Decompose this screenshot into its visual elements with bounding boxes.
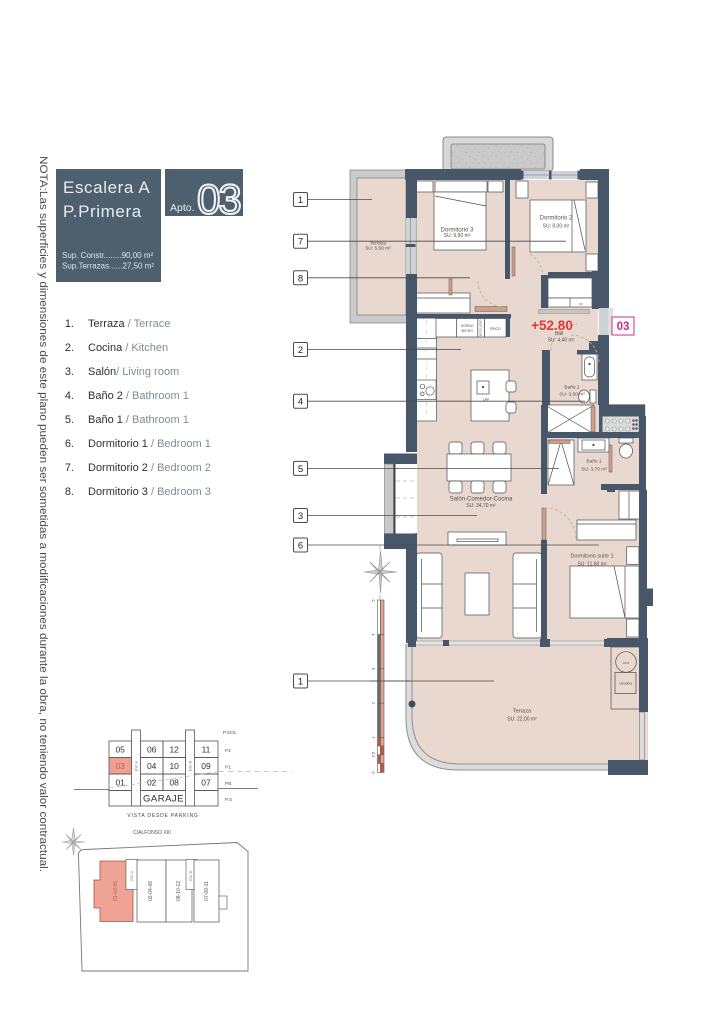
svg-text:P.S: P.S [225, 797, 232, 803]
svg-text:5: 5 [298, 464, 303, 475]
svg-text:07: 07 [201, 777, 211, 787]
svg-text:01: 01 [115, 777, 125, 787]
svg-text:4: 4 [372, 633, 376, 635]
svg-text:Baño 2 / Bathroom 1: Baño 2 / Bathroom 1 [88, 390, 189, 402]
svg-text:10: 10 [169, 761, 179, 771]
svg-text:Baño 2: Baño 2 [564, 385, 580, 391]
svg-text:2: 2 [372, 702, 376, 704]
svg-text:03: 03 [115, 761, 125, 771]
svg-text:ESC-A: ESC-A [130, 870, 134, 881]
svg-text:SU: 3,70 m²: SU: 3,70 m² [581, 467, 607, 473]
svg-text:HORNO: HORNO [461, 324, 474, 328]
svg-text:SU: 34,70 m²: SU: 34,70 m² [466, 503, 496, 509]
svg-text:08-10-12: 08-10-12 [176, 881, 182, 901]
svg-text:SU: 8,00 m²: SU: 8,00 m² [543, 224, 570, 230]
svg-text:3: 3 [298, 511, 303, 522]
svg-text:08: 08 [169, 777, 179, 787]
svg-text:Dormitorio 2 / Bedroom 2: Dormitorio 2 / Bedroom 2 [88, 462, 211, 474]
svg-text:Terraza / Terrace: Terraza / Terrace [88, 318, 170, 330]
svg-text:SU: 4,40 m²: SU: 4,40 m² [548, 338, 575, 344]
svg-text:Dormitorio 3 / Bedroom 3: Dormitorio 3 / Bedroom 3 [88, 486, 211, 498]
svg-text:4: 4 [298, 397, 303, 408]
svg-text:1.: 1. [65, 318, 74, 330]
svg-text:07-09-11: 07-09-11 [204, 881, 210, 901]
svg-text:CF: CF [579, 302, 583, 306]
svg-text:Cocina / Kitchen: Cocina / Kitchen [88, 342, 168, 354]
svg-text:8.: 8. [65, 486, 74, 498]
svg-text:P2: P2 [225, 748, 231, 754]
svg-text:MICRO: MICRO [462, 329, 474, 333]
svg-text:4.: 4. [65, 390, 74, 402]
svg-text:1: 1 [372, 736, 376, 738]
svg-text:8: 8 [298, 273, 303, 284]
svg-text:Apto.: Apto. [170, 202, 195, 214]
svg-text:2.: 2. [65, 342, 74, 354]
svg-text:Sup. Constr........90,00 m²: Sup. Constr........90,00 m² [62, 251, 153, 260]
svg-text:BOTELLERO: BOTELLERO [478, 319, 482, 337]
svg-text:03: 03 [197, 176, 240, 223]
svg-text:+52.80: +52.80 [531, 318, 573, 333]
svg-text:Dormitorio 2: Dormitorio 2 [540, 216, 573, 222]
svg-text:SU: 3,50 m²: SU: 3,50 m² [559, 392, 585, 398]
svg-text:11: 11 [202, 744, 211, 754]
svg-text:3.: 3. [65, 366, 74, 378]
svg-text:04: 04 [147, 761, 157, 771]
svg-text:S: S [378, 546, 381, 551]
svg-text:6.: 6. [65, 438, 74, 450]
svg-text:05: 05 [115, 744, 125, 754]
svg-text:01-03-05: 01-03-05 [113, 881, 119, 901]
svg-text:Dormitorio suite 1: Dormitorio suite 1 [570, 554, 613, 560]
svg-text:5.: 5. [65, 414, 74, 426]
svg-text:Dormitorio 1 / Bedroom 1: Dormitorio 1 / Bedroom 1 [88, 438, 211, 450]
svg-text:SU: 9,90 m²: SU: 9,90 m² [444, 233, 471, 239]
svg-text:0.5: 0.5 [372, 752, 376, 757]
svg-text:Sup.Terrazas......27,50 m²: Sup.Terrazas......27,50 m² [62, 262, 154, 271]
svg-text:Baño 1 / Bathroom 1: Baño 1 / Bathroom 1 [88, 414, 189, 426]
svg-text:7: 7 [298, 237, 303, 248]
svg-text:ESC-B: ESC-B [189, 760, 193, 771]
svg-text:09: 09 [201, 761, 211, 771]
svg-text:SU: 5,50 m²: SU: 5,50 m² [365, 246, 391, 252]
svg-text:NOTA:Las superficies y dimensi: NOTA:Las superficies y dimensiones de es… [37, 156, 49, 872]
svg-text:5: 5 [372, 599, 376, 601]
svg-text:12: 12 [169, 744, 179, 754]
svg-text:FRIGO: FRIGO [490, 327, 501, 331]
svg-text:P.Primera: P.Primera [63, 202, 142, 221]
svg-text:02-04-06: 02-04-06 [148, 881, 154, 901]
svg-text:SU: 22,00 m²: SU: 22,00 m² [507, 717, 537, 723]
svg-text:3: 3 [372, 668, 376, 670]
svg-text:P.SOL: P.SOL [223, 730, 237, 736]
svg-text:SU: 11,60 m²: SU: 11,60 m² [577, 562, 606, 568]
svg-text:VISTA DESDE PARKING: VISTA DESDE PARKING [127, 813, 198, 819]
svg-text:ESC-B: ESC-B [189, 871, 193, 881]
svg-text:S: S [378, 595, 381, 600]
svg-text:Baño 1: Baño 1 [586, 459, 602, 465]
svg-text:0: 0 [372, 771, 376, 773]
svg-text:2: 2 [298, 345, 303, 356]
svg-text:Salón-Comedor-Cocina: Salón-Comedor-Cocina [450, 497, 513, 503]
svg-text:Escalera A: Escalera A [63, 178, 150, 197]
svg-text:1: 1 [298, 195, 303, 206]
svg-text:1: 1 [298, 677, 303, 688]
svg-text:PB: PB [225, 781, 231, 787]
svg-text:ACS: ACS [623, 661, 629, 665]
svg-text:03: 03 [617, 321, 630, 333]
svg-text:7.: 7. [65, 462, 74, 474]
svg-text:Lavadora: Lavadora [619, 682, 633, 686]
svg-text:ESC-A: ESC-A [135, 760, 139, 771]
svg-text:C/ALFONSO XIII: C/ALFONSO XIII [133, 830, 171, 836]
svg-text:6: 6 [298, 541, 303, 552]
svg-text:LAV: LAV [483, 398, 490, 402]
svg-text:Salón/ Living room: Salón/ Living room [88, 366, 179, 378]
svg-text:06: 06 [147, 744, 157, 754]
svg-text:GARAJE: GARAJE [143, 794, 184, 805]
svg-text:Terraza: Terraza [513, 709, 532, 715]
svg-text:P1: P1 [225, 765, 231, 771]
